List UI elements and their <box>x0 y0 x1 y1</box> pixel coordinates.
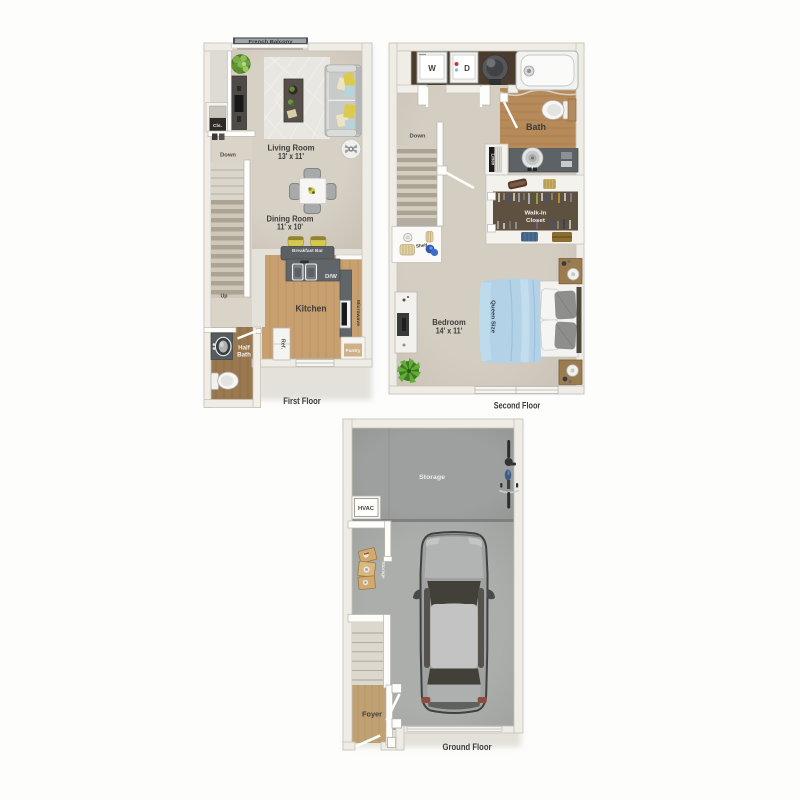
svg-text:First Floor: First Floor <box>283 396 321 406</box>
svg-text:Walk-In: Walk-In <box>525 211 547 217</box>
svg-text:D: D <box>464 64 470 73</box>
svg-text:13' x 11': 13' x 11' <box>278 152 304 161</box>
svg-text:Bedroom: Bedroom <box>432 317 466 327</box>
svg-text:Closet: Closet <box>526 218 545 224</box>
svg-text:Kitchen: Kitchen <box>296 304 327 314</box>
svg-text:Microwave: Microwave <box>356 300 361 327</box>
svg-text:Breakfast Bar: Breakfast Bar <box>292 248 323 253</box>
svg-text:Second Floor: Second Floor <box>494 401 541 411</box>
svg-text:Linen: Linen <box>491 154 496 166</box>
svg-text:Up: Up <box>220 294 228 300</box>
svg-text:French Balcony: French Balcony <box>249 39 294 44</box>
svg-text:Foyer: Foyer <box>362 710 382 719</box>
svg-text:Half: Half <box>238 345 251 352</box>
svg-text:Bath: Bath <box>526 122 546 132</box>
svg-text:14' x 11': 14' x 11' <box>436 327 463 336</box>
svg-text:Queen Size: Queen Size <box>490 300 496 333</box>
svg-text:D/W: D/W <box>325 274 337 280</box>
svg-text:Storage: Storage <box>419 474 445 481</box>
svg-text:Cls.: Cls. <box>213 123 223 129</box>
svg-text:HVAC: HVAC <box>358 506 374 512</box>
svg-text:11' x 10': 11' x 10' <box>277 223 303 232</box>
svg-text:Ref.: Ref. <box>280 339 286 350</box>
svg-text:Down: Down <box>220 153 236 159</box>
svg-text:Pantry: Pantry <box>346 348 361 353</box>
svg-text:Storage: Storage <box>381 562 386 579</box>
svg-text:Bath: Bath <box>237 352 251 359</box>
svg-text:W: W <box>428 64 436 73</box>
svg-text:Ground Floor: Ground Floor <box>443 742 492 752</box>
svg-text:Down: Down <box>410 133 426 139</box>
